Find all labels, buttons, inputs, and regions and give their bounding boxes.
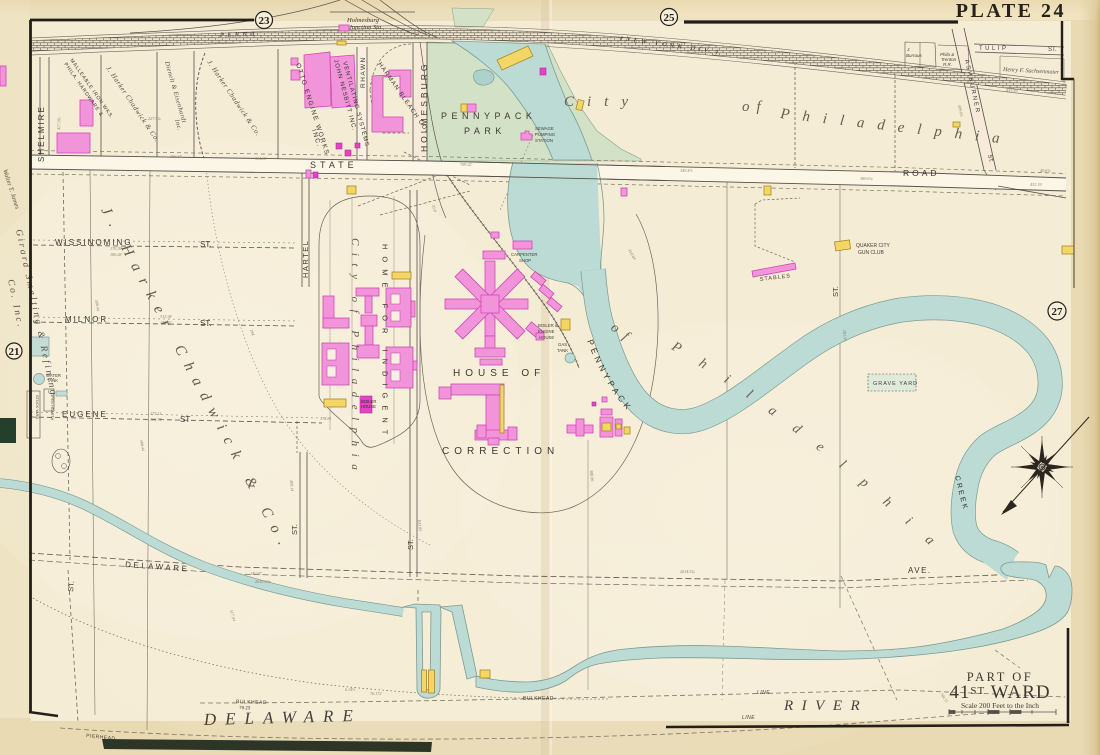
- svg-text:TULIP: TULIP: [979, 46, 1009, 52]
- svg-text:384.83: 384.83: [255, 156, 267, 161]
- svg-text:Scale 200 Feet to the Inch: Scale 200 Feet to the Inch: [961, 701, 1039, 710]
- svg-text:433.19: 433.19: [1030, 182, 1042, 187]
- svg-text:313.38: 313.38: [160, 314, 172, 319]
- svg-text:HOLMESBURG: HOLMESBURG: [419, 62, 429, 152]
- svg-text:HOUSE: HOUSE: [539, 335, 554, 340]
- svg-text:PUMPING: PUMPING: [535, 132, 556, 137]
- svg-text:170.39: 170.39: [110, 246, 122, 251]
- svg-text:CARPENTER: CARPENTER: [511, 252, 538, 257]
- svg-text:PARK: PARK: [464, 126, 506, 136]
- svg-text:PLATE 24: PLATE 24: [956, 0, 1066, 22]
- svg-text:RIVER: RIVER: [783, 698, 868, 714]
- svg-text:LINE: LINE: [757, 690, 770, 696]
- svg-text:ST.: ST.: [831, 286, 840, 297]
- svg-text:GUN CLUB: GUN CLUB: [858, 250, 885, 256]
- svg-text:180.28: 180.28: [110, 252, 122, 257]
- svg-text:ST: ST: [180, 415, 190, 424]
- svg-text:MILNOR: MILNOR: [65, 315, 108, 324]
- svg-text:PENNA: PENNA: [219, 31, 258, 39]
- svg-text:349.4½: 349.4½: [680, 168, 693, 173]
- svg-text:R.R.: R.R.: [943, 62, 952, 67]
- svg-text:709.22: 709.22: [460, 162, 472, 167]
- svg-text:HOUSE OF: HOUSE OF: [453, 368, 545, 379]
- svg-text:LINE: LINE: [742, 715, 755, 721]
- svg-text:CORRECTION: CORRECTION: [442, 446, 559, 457]
- svg-text:AVE.: AVE.: [908, 566, 932, 575]
- svg-text:HOME FOR INDIGENT: HOME FOR INDIGENT: [381, 244, 390, 441]
- svg-text:ROAD: ROAD: [903, 168, 940, 178]
- svg-text:76.172: 76.172: [370, 691, 382, 696]
- svg-text:227.9¾: 227.9¾: [148, 116, 161, 121]
- svg-text:ST.: ST.: [66, 581, 76, 593]
- svg-text:STOCK YARD: STOCK YARD: [35, 395, 39, 420]
- svg-text:STATION: STATION: [535, 138, 553, 143]
- svg-text:BULKHEAD: BULKHEAD: [523, 696, 554, 702]
- svg-text:OPEN HEARTH: OPEN HEARTH: [50, 393, 54, 421]
- svg-text:HARTEL: HARTEL: [301, 240, 310, 278]
- svg-text:182.74: 182.74: [150, 417, 162, 422]
- svg-text:173.11: 173.11: [150, 411, 161, 416]
- svg-text:ST.: ST.: [200, 319, 212, 328]
- svg-text:EUGENE: EUGENE: [62, 410, 108, 419]
- svg-text:TANK: TANK: [47, 378, 58, 383]
- svg-text:of: of: [742, 99, 768, 115]
- svg-text:380.6¼: 380.6¼: [860, 176, 873, 181]
- svg-text:41ST WARD: 41ST WARD: [949, 682, 1050, 703]
- svg-text:21: 21: [9, 346, 20, 358]
- svg-text:BOILER &: BOILER &: [538, 323, 558, 328]
- svg-text:156.64: 156.64: [170, 154, 182, 159]
- svg-text:PENNYPACK: PENNYPACK: [441, 111, 536, 121]
- svg-text:SHELMIRE: SHELMIRE: [37, 105, 46, 162]
- svg-text:40.6¼: 40.6¼: [1040, 168, 1051, 173]
- svg-text:172.42: 172.42: [160, 320, 172, 325]
- svg-text:Junction Sta.: Junction Sta.: [349, 24, 383, 31]
- svg-text:City: City: [564, 94, 641, 110]
- svg-text:633.85: 633.85: [417, 520, 423, 532]
- svg-text:SEWAGE: SEWAGE: [535, 126, 554, 131]
- svg-text:2610.63a: 2610.63a: [255, 579, 271, 584]
- svg-text:140.87: 140.87: [250, 571, 262, 576]
- svg-text:QUAKER CITY: QUAKER CITY: [856, 243, 891, 249]
- svg-text:ST.: ST.: [406, 539, 415, 550]
- svg-text:433.19: 433.19: [1006, 88, 1018, 93]
- svg-text:427.9¾: 427.9¾: [56, 116, 61, 130]
- svg-text:ST.: ST.: [290, 524, 299, 535]
- svg-text:23: 23: [259, 15, 271, 27]
- svg-text:6.14½: 6.14½: [345, 687, 355, 692]
- svg-text:SHOP: SHOP: [519, 258, 531, 263]
- svg-text:25: 25: [664, 12, 676, 24]
- svg-text:J.: J.: [906, 47, 911, 52]
- svg-text:STATE: STATE: [310, 160, 358, 170]
- svg-text:ENGINE: ENGINE: [538, 329, 555, 334]
- svg-text:TANK: TANK: [557, 348, 568, 353]
- svg-text:178.81: 178.81: [320, 416, 332, 421]
- svg-text:City of Philadelphia: City of Philadelphia: [349, 238, 361, 477]
- svg-text:2614.5¾: 2614.5¾: [680, 569, 696, 574]
- svg-text:HOUSE: HOUSE: [361, 404, 376, 409]
- svg-text:27: 27: [1052, 306, 1064, 318]
- svg-text:ST.: ST.: [200, 240, 212, 249]
- svg-text:GAS: GAS: [558, 342, 567, 347]
- svg-text:ST.: ST.: [1048, 47, 1057, 53]
- svg-text:RHAWN: RHAWN: [360, 56, 367, 88]
- svg-text:GRAVE YARD: GRAVE YARD: [873, 381, 918, 387]
- svg-text:409.14: 409.14: [289, 480, 295, 492]
- svg-text:Burrous: Burrous: [906, 53, 923, 58]
- svg-text:Holmesburg: Holmesburg: [346, 17, 380, 24]
